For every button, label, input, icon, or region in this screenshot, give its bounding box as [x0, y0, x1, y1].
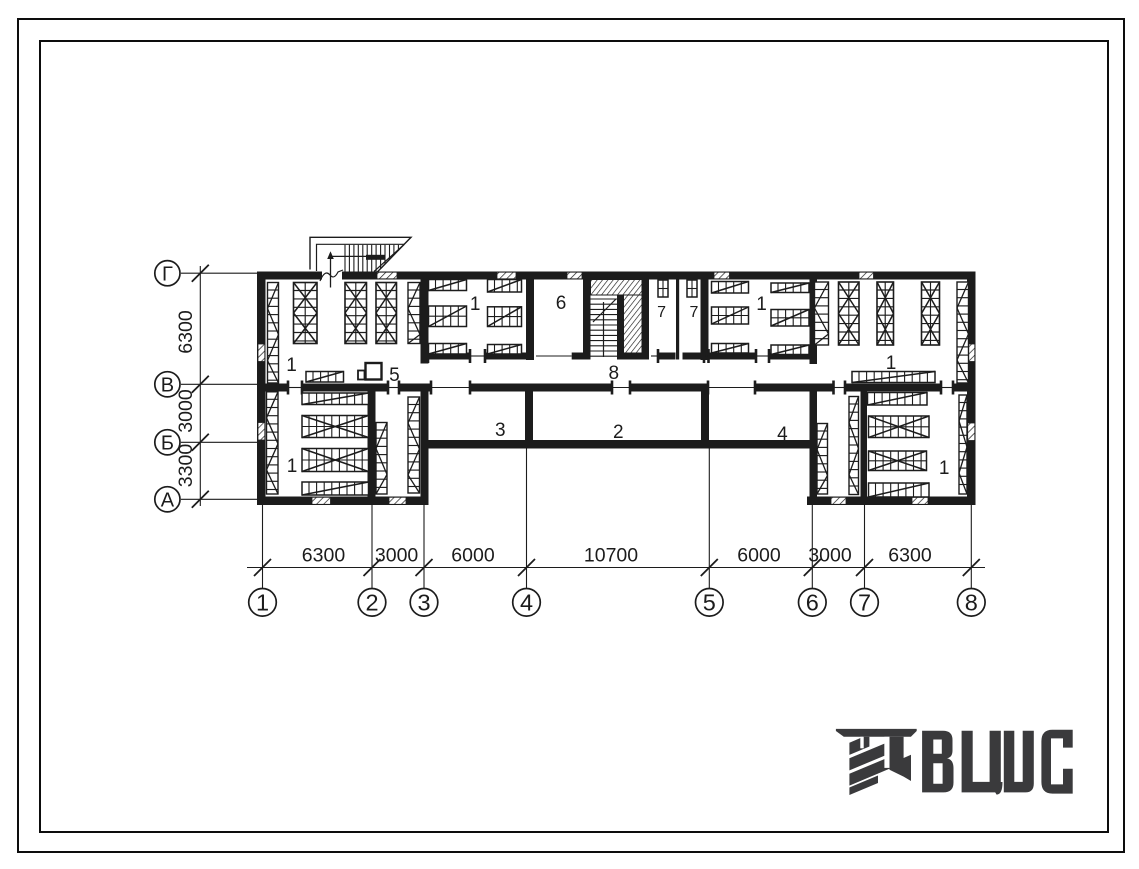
svg-text:1: 1 — [939, 458, 950, 479]
svg-text:7: 7 — [858, 590, 871, 616]
svg-text:3000: 3000 — [175, 389, 197, 433]
svg-text:8: 8 — [965, 590, 978, 616]
svg-text:6: 6 — [556, 293, 567, 314]
svg-text:1: 1 — [470, 294, 481, 315]
svg-text:1: 1 — [286, 355, 297, 376]
svg-text:3300: 3300 — [175, 444, 197, 488]
svg-text:1: 1 — [287, 456, 298, 477]
svg-text:6: 6 — [806, 590, 819, 616]
svg-text:3: 3 — [417, 590, 430, 616]
svg-text:8: 8 — [609, 363, 620, 384]
svg-text:10700: 10700 — [584, 545, 638, 567]
svg-text:А: А — [161, 490, 175, 512]
svg-text:4: 4 — [777, 424, 788, 445]
svg-text:6300: 6300 — [302, 545, 346, 567]
svg-text:2: 2 — [365, 590, 378, 616]
svg-text:1: 1 — [756, 294, 767, 315]
svg-text:Б: Б — [161, 433, 174, 455]
svg-text:7: 7 — [689, 304, 698, 321]
svg-text:1: 1 — [256, 590, 269, 616]
svg-text:1: 1 — [886, 353, 897, 374]
svg-text:5: 5 — [703, 590, 716, 616]
svg-text:7: 7 — [657, 304, 666, 321]
svg-text:6000: 6000 — [451, 545, 495, 567]
svg-text:3: 3 — [495, 420, 506, 441]
svg-text:Г: Г — [162, 263, 173, 285]
svg-text:6000: 6000 — [737, 545, 781, 567]
svg-text:6300: 6300 — [888, 545, 932, 567]
svg-text:6300: 6300 — [175, 310, 197, 354]
svg-text:В: В — [161, 375, 174, 397]
svg-text:5: 5 — [389, 365, 400, 386]
svg-text:2: 2 — [613, 422, 624, 443]
svg-text:3000: 3000 — [808, 545, 852, 567]
svg-text:3000: 3000 — [375, 545, 419, 567]
svg-text:4: 4 — [520, 590, 533, 616]
